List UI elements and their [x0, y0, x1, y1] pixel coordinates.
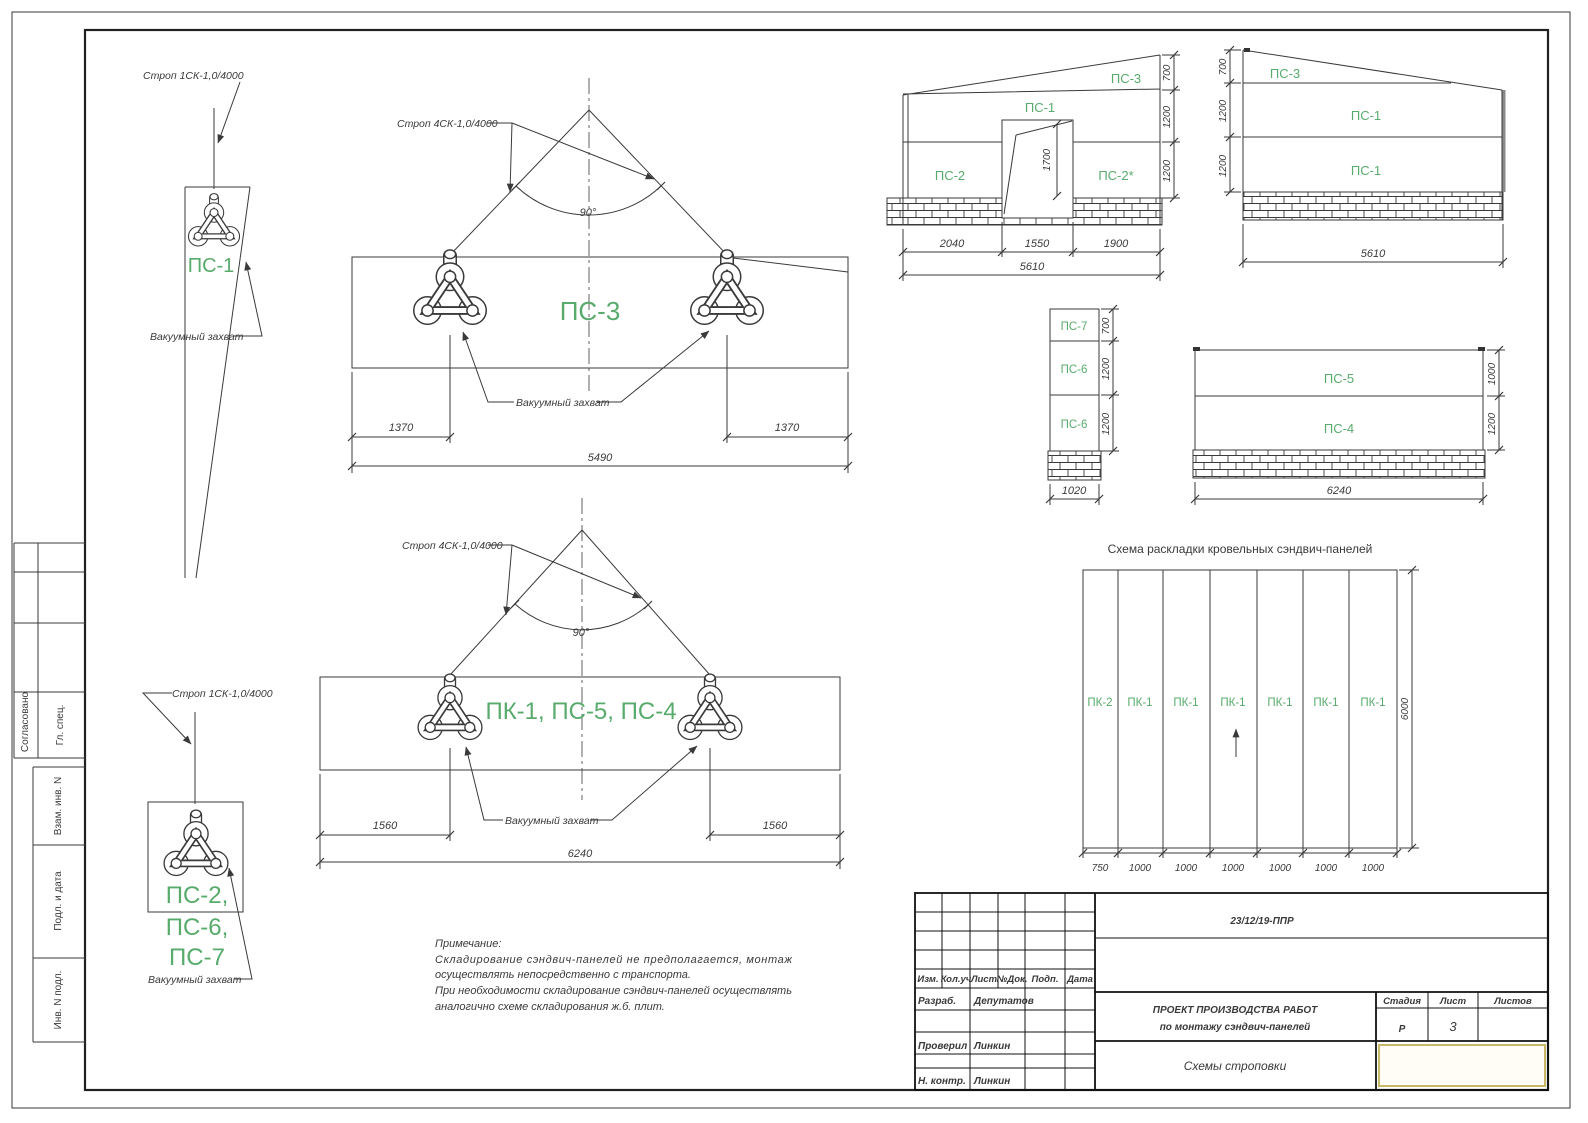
stack-h1: 700: [1101, 317, 1112, 334]
project-title-2: по монтажу сэндвич-панелей: [1160, 1022, 1311, 1033]
side-label-approved: Согласовано: [20, 692, 31, 753]
panel-ps1-bot: ПС-1: [1351, 163, 1381, 178]
doc-number: 23/12/19-ППР: [1229, 916, 1294, 927]
note-line-3: При необходимости складирование сэндвич-…: [435, 985, 792, 997]
name-razrab: Депутатов: [973, 996, 1034, 1007]
angle-label: 90°: [573, 627, 590, 639]
panel-label-1: ПС-2,: [166, 882, 229, 909]
side-label-inv: Инв. N подл.: [53, 971, 64, 1030]
h-dim-3: 1200: [1218, 154, 1229, 177]
note-line-1: Складирование сэндвич-панелей не предпол…: [435, 954, 792, 966]
col-list: Лист: [970, 974, 998, 985]
name-nkontr: Линкин: [973, 1076, 1010, 1087]
stack-width: 1020: [1062, 485, 1087, 497]
roof-w-4: 1000: [1222, 863, 1245, 874]
note-block: Примечание: Складирование сэндвич-панеле…: [435, 938, 792, 1013]
sling-detail-top: Строп 1СК-1,0/4000 ПС-1 Вакуумный захват: [143, 70, 262, 578]
panel-ps2a: ПС-2*: [1098, 168, 1133, 183]
col-izm: Изм.: [917, 974, 938, 985]
h-dim-2: 1200: [1218, 99, 1229, 122]
strop-label: Строп 4СК-1,0/4000: [402, 540, 503, 552]
panel-ps1: ПС-1: [1025, 100, 1055, 115]
roof-w-7: 1000: [1362, 863, 1385, 874]
roof-col-4: ПК-1: [1220, 697, 1245, 709]
col-ndok: №Док.: [996, 974, 1027, 985]
wall-h2: 1200: [1487, 412, 1498, 435]
sheet-label: Лист: [1439, 996, 1467, 1007]
roof-col-2: ПК-1: [1127, 697, 1152, 709]
role-razrab: Разраб.: [918, 995, 956, 1007]
side-label-vzam: Взам. инв. N: [53, 777, 64, 835]
side-label-spec: Гл. спец.: [55, 705, 66, 746]
roof-col-7: ПК-1: [1360, 697, 1385, 709]
panel-label: ПС-1: [188, 255, 235, 277]
dim-left: 1370: [389, 422, 414, 434]
roof-w-2: 1000: [1129, 863, 1152, 874]
stack-h3: 1200: [1101, 412, 1112, 435]
w-dim-total: 5610: [1020, 261, 1045, 273]
dim-right: 1560: [763, 820, 788, 832]
side-label-podp: Подл. и дата: [53, 871, 64, 931]
stamp-empty-box: [1379, 1045, 1545, 1086]
roof-title: Схема раскладки кровельных сэндвич-панел…: [1108, 542, 1373, 556]
elevation-2: ПС-3 ПС-1 ПС-1 700 1200 1200 5610: [1218, 46, 1507, 268]
stack-p2: ПС-6: [1061, 364, 1088, 376]
roof-col-5: ПК-1: [1267, 697, 1292, 709]
roof-col-1: ПК-2: [1087, 697, 1112, 709]
h-dim-1: 700: [1162, 64, 1173, 81]
roof-w-1: 750: [1092, 863, 1109, 874]
panel-ps1-mid: ПС-1: [1351, 108, 1381, 123]
wall-panel: ПС-5 ПС-4 1000 1200 6240: [1191, 346, 1505, 505]
note-title: Примечание:: [435, 938, 501, 950]
angle-label: 90°: [580, 207, 597, 219]
roof-layout: Схема раскладки кровельных сэндвич-панел…: [1079, 542, 1419, 874]
dim-total: 6240: [568, 848, 593, 860]
stack-p1: ПС-7: [1061, 321, 1088, 333]
w-dim-2: 1550: [1025, 238, 1050, 250]
panel-ps2: ПС-2: [935, 168, 965, 183]
vacuum-label: Вакуумный захват: [150, 331, 244, 343]
col-koluch: Кол.уч: [941, 974, 972, 985]
vacuum-label: Вакуумный захват: [505, 815, 599, 827]
roof-w-6: 1000: [1315, 863, 1338, 874]
strop-label: Строп 1СК-1,0/4000: [143, 70, 244, 82]
stack-h2: 1200: [1101, 357, 1112, 380]
w-dim-3: 1900: [1104, 238, 1129, 250]
strop-label: Строп 4СК-1,0/4000: [397, 118, 498, 130]
side-stamp: Согласовано Гл. спец. Взам. инв. N Подл.…: [14, 543, 85, 1042]
dim-right: 1370: [775, 422, 800, 434]
rig-diagram-2: Строп 4СК-1,0/4000 90° ПК-1, ПС-5, ПС-4 …: [316, 498, 844, 869]
panel-stack: ПС-7 ПС-6 ПС-6 700 1200 1200 1020: [1046, 305, 1119, 505]
roof-w-3: 1000: [1175, 863, 1198, 874]
name-proveril: Линкин: [973, 1041, 1010, 1052]
h-dim-1: 700: [1218, 58, 1229, 75]
roof-height-dim: 6000: [1400, 697, 1411, 720]
panel-label-3: ПС-7: [169, 944, 225, 971]
sheet-frame: [12, 12, 1570, 1108]
note-line-4: аналогично схеме складирования ж.б. плит…: [435, 1001, 665, 1013]
col-data: Дата: [1066, 974, 1093, 985]
role-nkontr: Н. контр.: [918, 1076, 966, 1087]
dim-total: 5490: [588, 452, 613, 464]
roof-col-6: ПК-1: [1313, 697, 1338, 709]
roof-col-3: ПК-1: [1173, 697, 1198, 709]
wall-p2: ПС-4: [1324, 421, 1354, 436]
w-dim-total: 5610: [1361, 248, 1386, 260]
role-proveril: Проверил: [918, 1041, 968, 1052]
vacuum-label: Вакуумный захват: [148, 974, 242, 986]
h-dim-2: 1200: [1162, 105, 1173, 128]
wall-width: 6240: [1327, 485, 1352, 497]
panel-label: ПС-3: [560, 296, 621, 326]
door-height-dim: 1700: [1042, 148, 1053, 171]
stack-p3: ПС-6: [1061, 419, 1088, 431]
col-podp: Подп.: [1032, 974, 1059, 985]
vacuum-label: Вакуумный захват: [516, 397, 610, 409]
w-dim-1: 2040: [939, 238, 965, 250]
panel-ps3: ПС-3: [1111, 71, 1141, 86]
project-title-1: ПРОЕКТ ПРОИЗВОДСТВА РАБОТ: [1153, 1005, 1318, 1016]
drawing-subtitle: Схемы строповки: [1184, 1059, 1287, 1073]
sheets-label: Листов: [1493, 996, 1532, 1007]
sling-detail-bottom: Строп 1СК-1,0/4000 ПС-2, ПС-6, ПС-7 Ваку…: [143, 688, 273, 986]
dim-left: 1560: [373, 820, 398, 832]
sheet-value: 3: [1449, 1019, 1457, 1034]
stage-value: Р: [1399, 1024, 1406, 1035]
strop-label: Строп 1СК-1,0/4000: [172, 688, 273, 700]
panel-ps3: ПС-3: [1270, 66, 1300, 81]
title-block: Изм. Кол.уч Лист №Док. Подп. Дата Разраб…: [915, 893, 1548, 1090]
panel-label-2: ПС-6,: [166, 914, 229, 941]
panel-label: ПК-1, ПС-5, ПС-4: [485, 698, 676, 725]
drawing-sheet: Согласовано Гл. спец. Взам. инв. N Подл.…: [0, 0, 1588, 1123]
wall-p1: ПС-5: [1324, 371, 1354, 386]
wall-h1: 1000: [1487, 362, 1498, 385]
note-line-2: осуществлять непосредственно с транспорт…: [435, 969, 691, 981]
drawing-canvas: Согласовано Гл. спец. Взам. инв. N Подл.…: [0, 0, 1588, 1123]
h-dim-3: 1200: [1162, 159, 1173, 182]
stage-label: Стадия: [1383, 996, 1421, 1007]
elevation-1: 1700 ПС-3 ПС-1 ПС-2 ПС-2* 700 1200 1200 …: [887, 51, 1180, 281]
rig-diagram-1: Строп 4СК-1,0/4000 90° ПС-3 Вакуумный за…: [348, 78, 852, 473]
roof-w-5: 1000: [1269, 863, 1292, 874]
